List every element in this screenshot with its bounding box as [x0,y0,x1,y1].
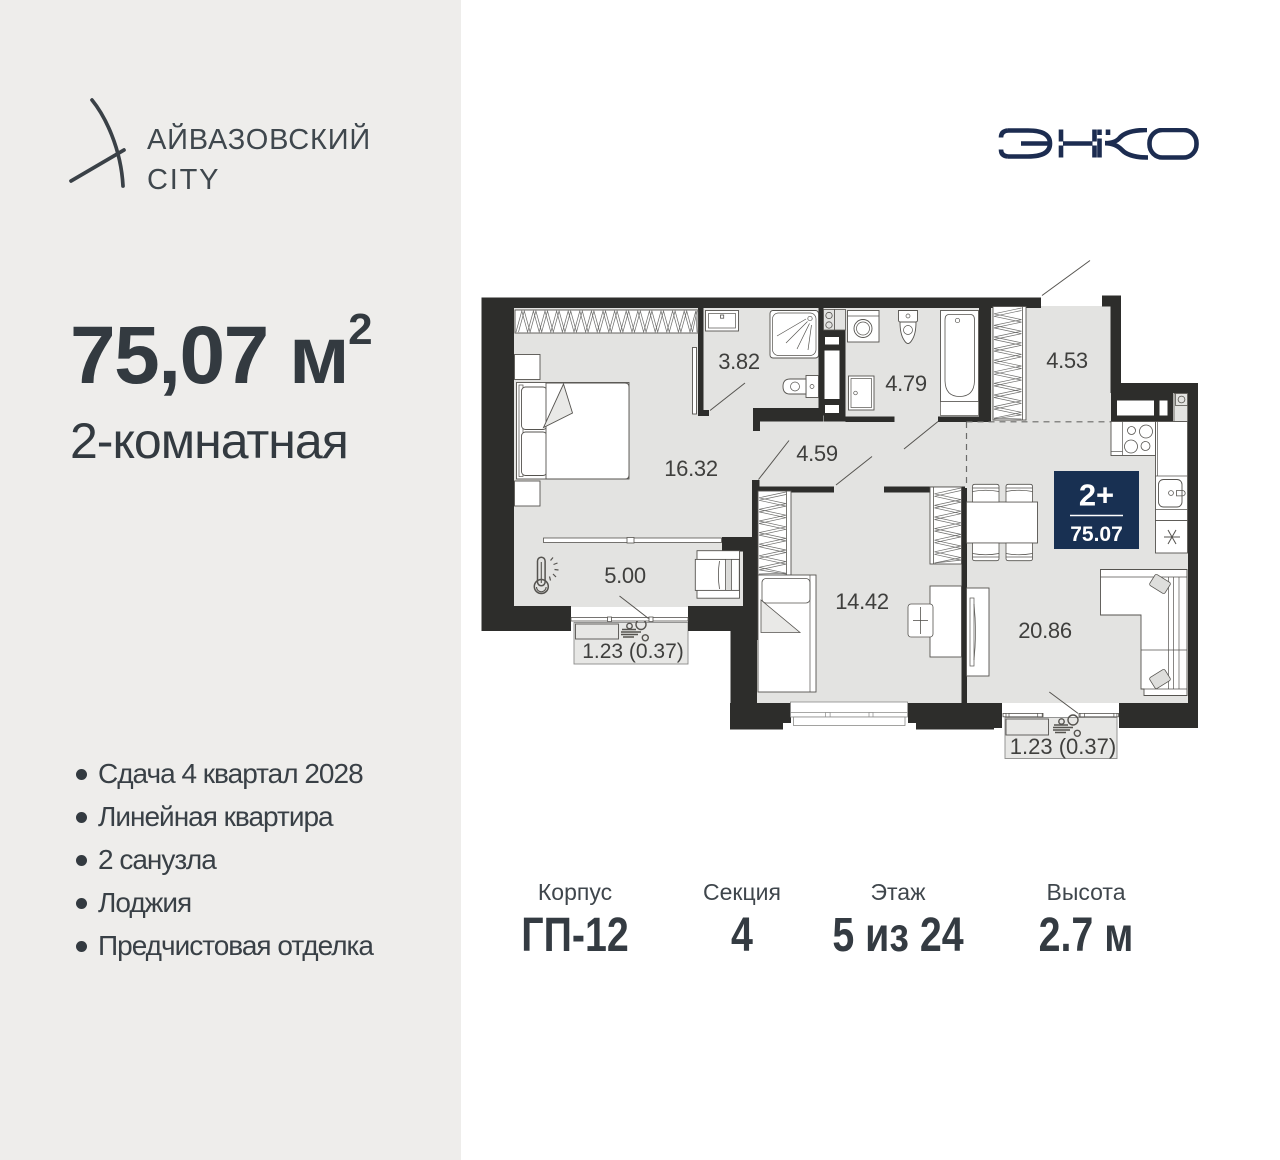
svg-text:16.32: 16.32 [664,456,718,481]
svg-text:4.59: 4.59 [796,441,838,466]
svg-text:1.23 (0.37): 1.23 (0.37) [1010,734,1116,759]
svg-text:3.82: 3.82 [718,349,760,374]
svg-text:2+: 2+ [1079,478,1114,513]
svg-text:1.23 (0.37): 1.23 (0.37) [582,640,684,663]
svg-text:5.00: 5.00 [604,563,646,588]
svg-text:75.07: 75.07 [1070,523,1123,546]
svg-text:4.79: 4.79 [885,371,927,396]
svg-text:4.53: 4.53 [1046,348,1088,373]
svg-text:20.86: 20.86 [1018,618,1072,643]
svg-text:CITY: CITY [147,164,220,196]
svg-text:АЙВАЗОВСКИЙ: АЙВАЗОВСКИЙ [147,122,371,156]
svg-text:14.42: 14.42 [835,589,889,614]
